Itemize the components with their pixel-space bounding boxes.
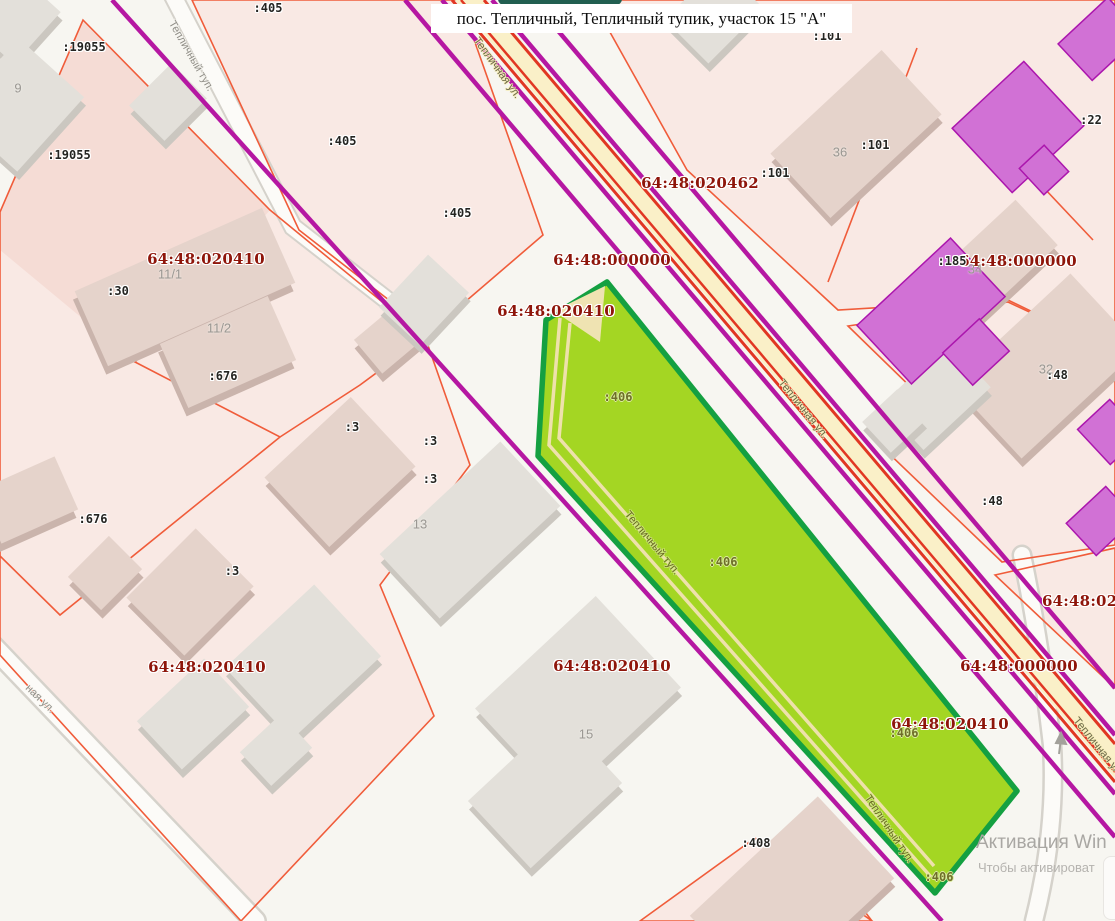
parcel-number-label: :22 — [1080, 113, 1102, 127]
street-name-label: Тепличная ул. — [776, 377, 831, 441]
parcel-number-label: :19055 — [62, 40, 105, 54]
street-name-label: ная ул. — [23, 682, 57, 716]
parcel-number-label: :405 — [328, 134, 357, 148]
cadastral-quarter-label: 64:48:020410 — [553, 657, 671, 675]
street-name-label: Тепличная ул. — [1071, 715, 1115, 779]
building-number-label: 13 — [413, 517, 427, 532]
page-title: пос. Тепличный, Тепличный тупик, участок… — [457, 9, 827, 29]
cadastral-quarter-label: 64:48:000000 — [960, 657, 1078, 675]
watermark-line2: Чтобы активироват — [978, 860, 1095, 875]
parcel-number-label: :185 — [938, 254, 967, 268]
selected-parcel-number-label: :406 — [709, 555, 738, 569]
parcel-number-label: :19055 — [47, 148, 90, 162]
selected-parcel-number-label: :406 — [925, 870, 954, 884]
parcel-number-label: :676 — [209, 369, 238, 383]
cadastral-quarter-label: 64:48:020410 — [148, 658, 266, 676]
building-number-label: 36 — [833, 145, 847, 160]
building-number-label: 9 — [14, 81, 21, 96]
building-number-label: 11/2 — [207, 321, 231, 336]
cadastral-quarter-label: 64:48:020462 — [641, 174, 759, 192]
building-number-label: 15 — [579, 727, 593, 742]
search-result-title: пос. Тепличный, Тепличный тупик, участок… — [431, 4, 852, 33]
parcel-number-label: :101 — [761, 166, 790, 180]
parcel-number-label: :408 — [742, 836, 771, 850]
parcel-number-label: :3 — [345, 420, 359, 434]
parcel-number-label: :3 — [423, 472, 437, 486]
parcel-number-label: :3 — [225, 564, 239, 578]
parcel-number-label: :101 — [861, 138, 890, 152]
building-number-label: 32 — [1039, 362, 1053, 377]
cadastral-quarter-label: 64:48:020410 — [497, 302, 615, 320]
street-name-label: Тепличный туп. — [622, 509, 682, 577]
parcel-number-label: :48 — [981, 494, 1003, 508]
selected-parcel-number-label: :406 — [890, 726, 919, 740]
parcel-number-label: :405 — [443, 206, 472, 220]
map-labels-layer: 64:48:02041064:48:02046264:48:00000064:4… — [0, 0, 1115, 921]
street-name-label: Тепличный туп. — [166, 19, 216, 94]
cadastral-quarter-label: 64:48:000000 — [553, 251, 671, 269]
cadastral-quarter-label: 64:48:020 — [1042, 592, 1115, 610]
watermark-line1: Активация Win — [976, 832, 1107, 854]
parcel-number-label: :405 — [254, 1, 283, 15]
street-name-label: Тепличная ул. — [471, 35, 523, 101]
parcel-number-label: :676 — [79, 512, 108, 526]
selected-parcel-number-label: :406 — [604, 390, 633, 404]
ui-card-edge — [1103, 856, 1115, 920]
parcel-number-label: :3 — [423, 434, 437, 448]
building-number-label: 11/1 — [158, 267, 182, 282]
cadastral-quarter-label: 64:48:020410 — [147, 250, 265, 268]
street-name-label: Тепличный туп. — [862, 793, 916, 865]
building-number-label: 34 — [968, 262, 982, 277]
cadastral-map-canvas[interactable]: 64:48:02041064:48:02046264:48:00000064:4… — [0, 0, 1115, 921]
parcel-number-label: :30 — [107, 284, 129, 298]
